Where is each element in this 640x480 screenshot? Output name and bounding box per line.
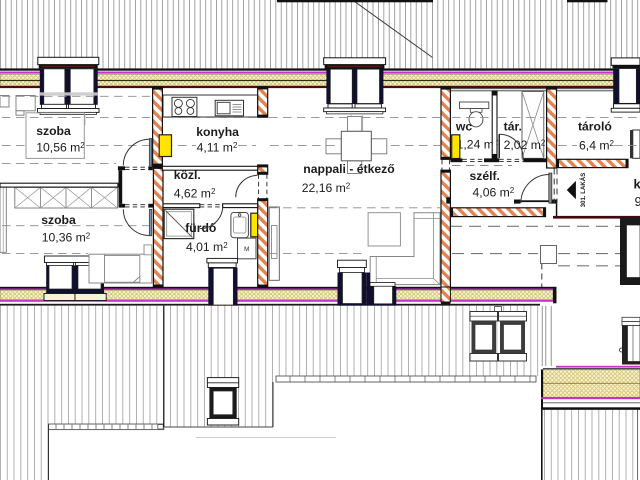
svg-text:10,56 m2: 10,56 m2	[36, 140, 85, 154]
svg-text:fürdő: fürdő	[185, 221, 216, 235]
svg-text:301. LAKÁS: 301. LAKÁS	[580, 173, 587, 208]
svg-text:22,16 m2: 22,16 m2	[302, 181, 351, 195]
svg-text:szoba: szoba	[36, 124, 71, 138]
svg-text:4,11 m2: 4,11 m2	[197, 140, 238, 154]
svg-text:4,06 m2: 4,06 m2	[473, 185, 515, 199]
svg-text:M: M	[244, 246, 249, 253]
svg-text:tároló: tároló	[578, 120, 612, 134]
svg-text:szoba: szoba	[41, 213, 76, 227]
svg-text:6,4 m2: 6,4 m2	[579, 139, 614, 153]
svg-text:wc: wc	[455, 120, 472, 134]
svg-text:4,62 m2: 4,62 m2	[174, 186, 216, 200]
svg-text:2,02 m2: 2,02 m2	[504, 138, 546, 152]
svg-text:9: 9	[635, 194, 640, 209]
svg-text:tár.: tár.	[504, 120, 522, 134]
svg-text:nappali - étkező: nappali - étkező	[303, 162, 394, 176]
svg-text:konyha: konyha	[196, 125, 239, 139]
svg-text:10,36 m2: 10,36 m2	[42, 231, 91, 245]
svg-text:szélf.: szélf.	[469, 169, 499, 183]
svg-text:4,01 m2: 4,01 m2	[186, 240, 228, 254]
svg-text:k: k	[634, 177, 640, 192]
